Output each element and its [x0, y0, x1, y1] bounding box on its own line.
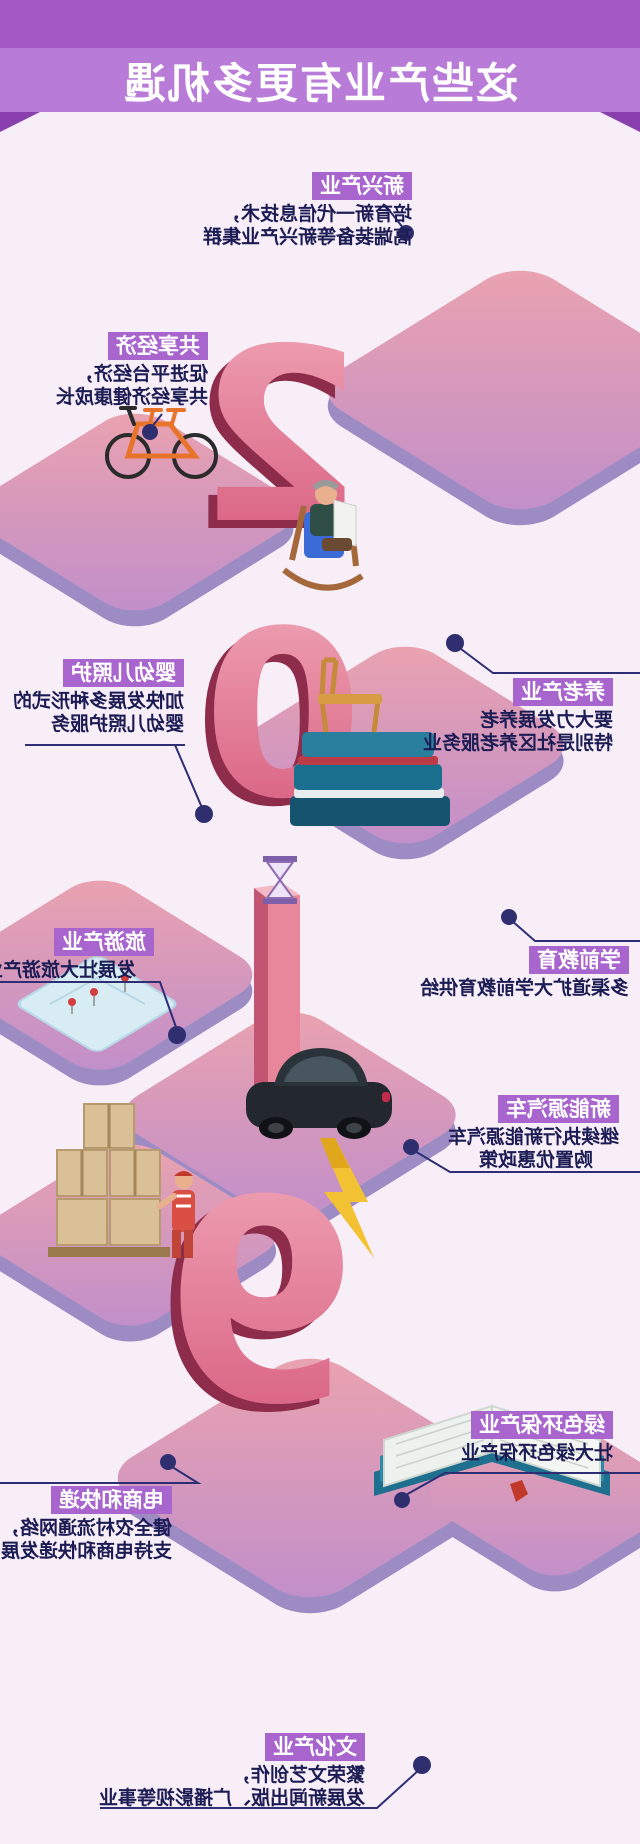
block-sharing-economy: 共享经济 促进平台经济， 共享经济健康成长 — [56, 332, 208, 409]
block-line: 多渠道扩大学前教育供给 — [420, 977, 629, 1000]
block-line: 繁荣文艺创作， — [99, 1764, 365, 1787]
block-line: 发展新闻出版、广播影视等事业 — [99, 1787, 365, 1810]
block-label: 旅游产业 — [54, 928, 154, 956]
block-label: 文化产业 — [265, 1733, 365, 1761]
hourglass-icon — [263, 856, 297, 904]
block-preschool-education: 学前教育 多渠道扩大学前教育供给 — [420, 946, 629, 1000]
block-green-industry: 绿色环保产业 壮大绿色环保产业 — [461, 1411, 613, 1465]
block-label: 新兴产业 — [312, 172, 412, 200]
block-label: 电商和快递 — [51, 1486, 172, 1514]
block-line: 培育新一代信息技术， — [203, 203, 412, 226]
illustration-layer: 2 2 0 0 9 9 — [0, 0, 640, 1844]
block-line: 特别是社区养老服务业 — [423, 732, 613, 755]
block-label: 共享经济 — [108, 332, 208, 360]
block-line: 支持电商和快递发展 — [1, 1540, 172, 1563]
block-line: 购置优惠政策 — [448, 1149, 593, 1172]
block-label: 婴幼儿照护 — [63, 659, 184, 687]
block-line: 促进平台经济， — [56, 363, 208, 386]
block-label: 养老产业 — [513, 678, 613, 706]
block-label: 学前教育 — [529, 946, 629, 974]
block-line: 婴幼儿照护服务 — [13, 713, 184, 736]
block-label: 绿色环保产业 — [471, 1411, 613, 1439]
block-line: 加快发展多种形式的 — [13, 690, 184, 713]
block-line: 健全农村流通网络， — [1, 1517, 172, 1540]
block-ecommerce-express: 电商和快递 健全农村流通网络， 支持电商和快递发展 — [1, 1486, 172, 1563]
block-line: 要大力发展养老 — [423, 709, 613, 732]
block-infant-care: 婴幼儿照护 加快发展多种形式的 婴幼儿照护服务 — [13, 659, 184, 736]
block-new-energy-vehicles: 新能源汽车 继续执行新能源汽车 购置优惠政策 — [448, 1095, 619, 1172]
block-line: 继续执行新能源汽车 — [448, 1126, 619, 1149]
block-tourism: 旅游产业 发展壮大旅游产业 — [0, 928, 154, 982]
block-line: 共享经济健康成长 — [56, 386, 208, 409]
block-emerging-industries: 新兴产业 培育新一代信息技术， 高端装备等新兴产业集群 — [203, 172, 412, 249]
block-line: 壮大绿色环保产业 — [461, 1442, 613, 1465]
infographic-canvas: 这些产业有更多机遇 — [0, 0, 640, 1844]
block-cultural-industry: 文化产业 繁荣文艺创作， 发展新闻出版、广播影视等事业 — [99, 1733, 365, 1810]
svg-text:9: 9 — [163, 1141, 358, 1467]
block-line: 发展壮大旅游产业 — [0, 959, 136, 982]
block-label: 新能源汽车 — [498, 1095, 619, 1123]
block-elderly-care: 养老产业 要大力发展养老 特别是社区养老服务业 — [423, 678, 613, 755]
block-line: 高端装备等新兴产业集群 — [203, 226, 412, 249]
